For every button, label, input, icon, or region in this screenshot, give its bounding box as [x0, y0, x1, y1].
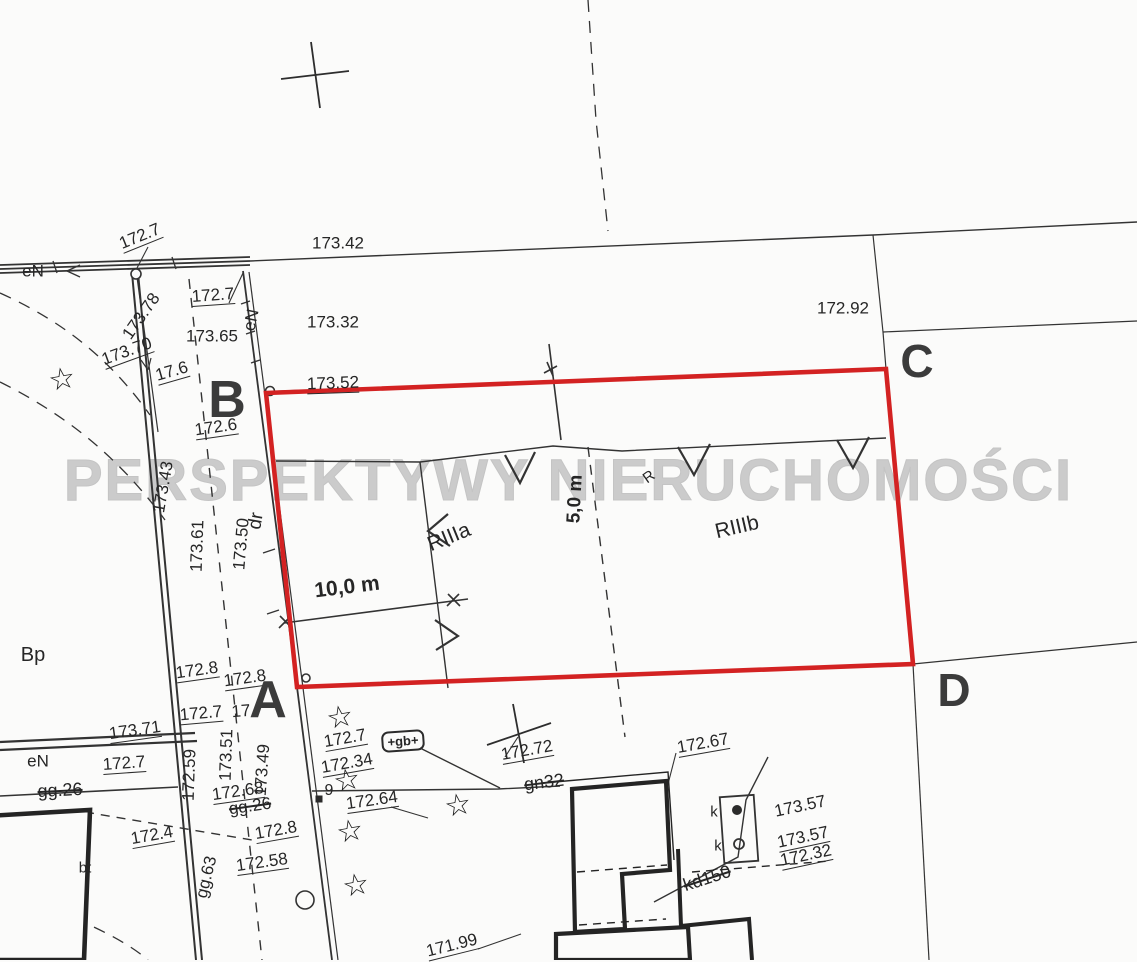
map-label: k [710, 805, 718, 820]
map-label: gg.63 [193, 854, 220, 899]
map-label: kd150 [681, 862, 733, 894]
map-label: 172.72 [500, 737, 555, 765]
map-label: 173.78 [119, 290, 163, 342]
map-label: 172.58 [235, 850, 289, 876]
map-label: 173.51 [217, 729, 236, 782]
map-labels-layer: 172.7173.42eN172.7173.32172.92173.78173.… [0, 0, 1137, 960]
map-label: eN [240, 308, 261, 333]
map-label: RIIIa [425, 519, 474, 555]
map-label: eN [22, 263, 44, 280]
map-label: 17.6 [153, 358, 190, 385]
map-label: 173.52 [307, 374, 360, 395]
tree-star-icon: ☆ [324, 701, 356, 735]
cadastral-map: PERSPEKTYWY NIERUCHOMOŚCI [0, 0, 1137, 960]
map-label: 9 [325, 783, 334, 799]
map-label: 172.67 [676, 730, 731, 758]
map-label: 10,0 m [313, 573, 380, 602]
map-label: 173.71 [108, 718, 162, 744]
map-label: 17 [231, 702, 251, 721]
parcel-corner-letter-A: A [249, 674, 287, 726]
tree-star-icon: ☆ [442, 789, 474, 823]
tree-star-icon: ☆ [334, 815, 366, 849]
map-label: 173.70 [99, 334, 154, 370]
map-label: 172.7 [179, 703, 223, 726]
map-label: gn32 [523, 771, 565, 794]
map-label: 172.7 [102, 753, 146, 775]
map-label: 173.32 [307, 314, 359, 331]
map-label: 173.43 [150, 460, 176, 514]
map-label: k [714, 839, 722, 854]
map-label: gg.26 [228, 795, 272, 818]
tree-star-icon: ☆ [340, 869, 372, 903]
parcel-corner-letter-B: B [208, 374, 246, 426]
map-label: R [640, 468, 657, 487]
map-label: gg.26 [37, 780, 83, 800]
map-label: 172.7 [191, 285, 235, 307]
map-label: 172.59 [180, 749, 199, 802]
map-label: +gb+ [381, 729, 425, 753]
map-label: 172.92 [817, 300, 869, 317]
map-label: 173.42 [312, 235, 364, 252]
parcel-corner-letter-D: D [937, 667, 970, 713]
tree-star-icon: ☆ [331, 764, 363, 798]
map-label: 172.7 [117, 220, 164, 254]
map-label: RIIIb [713, 512, 761, 542]
parcel-corner-letter-C: C [900, 338, 933, 384]
map-label: Bp [21, 645, 45, 665]
map-label: 173.61 [188, 520, 207, 573]
map-label: 173.57 [773, 792, 827, 819]
map-label: dr [245, 511, 267, 531]
map-label: 172.8 [175, 659, 220, 684]
map-label: 173.65 [186, 328, 238, 345]
map-label: bt [79, 861, 92, 876]
map-label: eN [27, 753, 49, 770]
map-label: 172.8 [253, 818, 298, 844]
map-label: 172.4 [129, 823, 174, 849]
map-label: 5,0 m [564, 474, 586, 524]
map-label: 171.99 [424, 930, 479, 961]
tree-star-icon: ☆ [46, 363, 78, 397]
